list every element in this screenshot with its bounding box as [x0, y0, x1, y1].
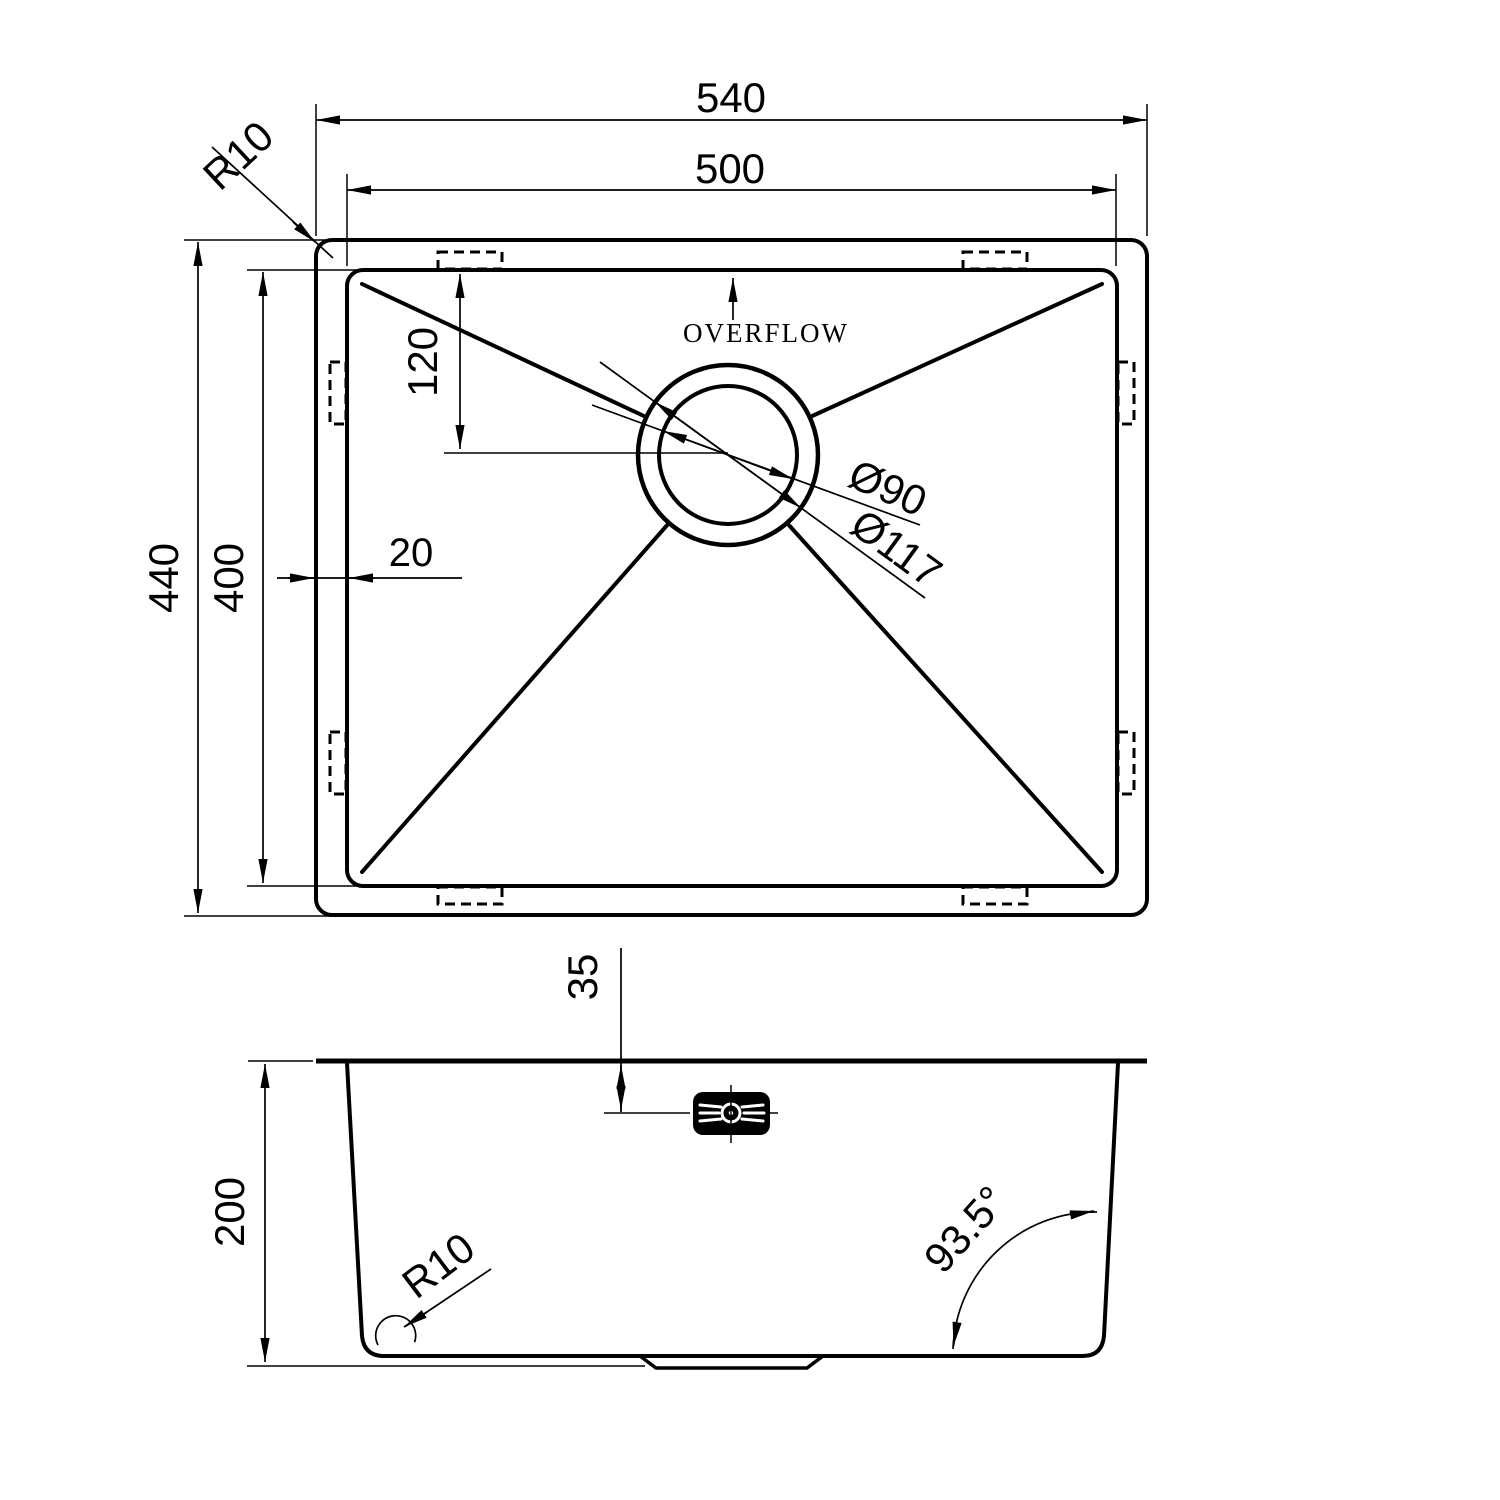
dim-120-label: 120: [399, 327, 446, 397]
mounting-clip-left-lower: [330, 732, 346, 794]
dim-500: 500: [347, 145, 1116, 266]
drawing-svg: OVERFLOW 540 500 R10 440: [0, 0, 1500, 1500]
dim-400-label: 400: [205, 543, 252, 613]
mounting-clip-left-upper: [330, 362, 346, 424]
basin-crease-bottom-left: [362, 523, 669, 872]
mounting-clip-right-upper: [1118, 362, 1134, 424]
basin-outline: [347, 270, 1117, 886]
sink-technical-drawing: OVERFLOW 540 500 R10 440: [0, 0, 1500, 1500]
mounting-clip-top-right: [963, 252, 1027, 269]
basin-crease-top-right: [810, 284, 1102, 417]
dim-r10-side-label: R10: [393, 1223, 483, 1307]
dim-200: 200: [206, 1064, 265, 1362]
mounting-clip-bottom-right: [963, 887, 1027, 904]
dim-20: 20: [277, 531, 462, 578]
dim-440-label: 440: [140, 543, 187, 613]
overflow-label: OVERFLOW: [683, 318, 849, 348]
dim-540-label: 540: [696, 74, 766, 121]
dim-r10-side: R10: [376, 1223, 491, 1345]
basin-crease-bottom-right: [787, 523, 1102, 872]
dim-wall-angle: 93.5°: [915, 1177, 1097, 1349]
side-view: 200 35 R10: [206, 948, 1147, 1368]
dim-20-label: 20: [389, 531, 434, 575]
overflow-fixture: [693, 1085, 778, 1143]
dim-drain-90: Ø90: [592, 405, 934, 525]
top-view: OVERFLOW 540 500 R10 440: [140, 74, 1147, 916]
dim-500-label: 500: [695, 145, 765, 192]
dim-r10-top: R10: [194, 112, 333, 258]
dim-wall-angle-label: 93.5°: [915, 1177, 1016, 1282]
mounting-clip-right-lower: [1118, 732, 1134, 794]
radius-indicator-arc: [376, 1316, 416, 1345]
mounting-clip-bottom-left: [438, 887, 502, 904]
dim-35-label: 35: [559, 954, 606, 1001]
dim-r10-top-label: R10: [194, 112, 282, 199]
dim-200-label: 200: [206, 1177, 253, 1247]
mounting-clip-top-left: [438, 252, 502, 269]
dim-120: 120: [399, 274, 728, 453]
dim-35: 35: [559, 948, 690, 1113]
